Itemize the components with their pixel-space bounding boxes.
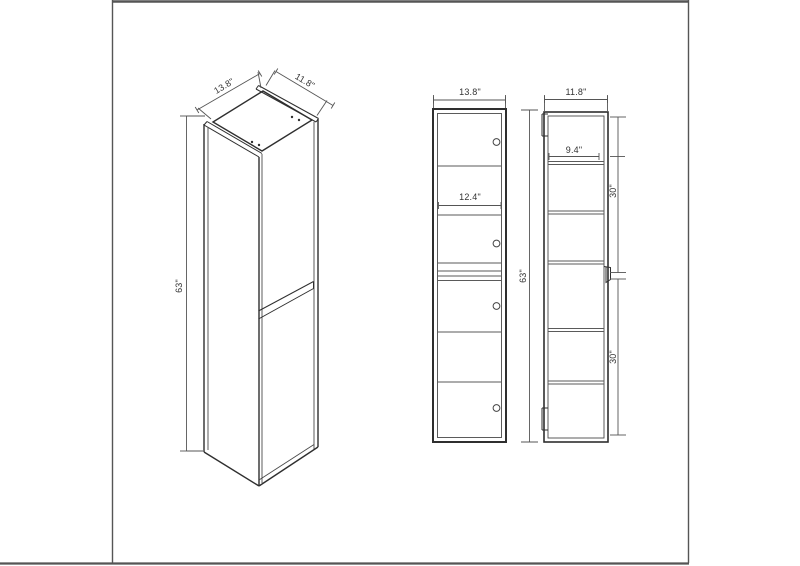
side-view — [542, 95, 626, 442]
side-lower-section-label: 30" — [608, 350, 618, 364]
front-interior-width-label: 12.4" — [459, 192, 481, 202]
side-section-dimensions — [610, 117, 626, 435]
drawing-linework — [0, 0, 800, 566]
side-upper-section-label: 30" — [608, 184, 618, 198]
technical-drawing-canvas: 13.8" 11.8" 63" 13.8" 12.4" 63" 11.8" 9.… — [0, 0, 800, 566]
side-width-label: 11.8" — [565, 87, 586, 97]
side-width-dimension — [545, 95, 608, 111]
hanging-rails — [542, 114, 548, 430]
front-width-label: 13.8" — [459, 87, 481, 97]
side-interior-depth-label: 9.4" — [566, 145, 583, 155]
page-frame — [0, 0, 689, 564]
door-knobs — [493, 139, 500, 412]
iso-height-label: 63" — [174, 279, 184, 293]
front-height-label: 63" — [518, 269, 528, 283]
isometric-view — [180, 69, 335, 487]
front-interior-dimension — [439, 202, 502, 209]
